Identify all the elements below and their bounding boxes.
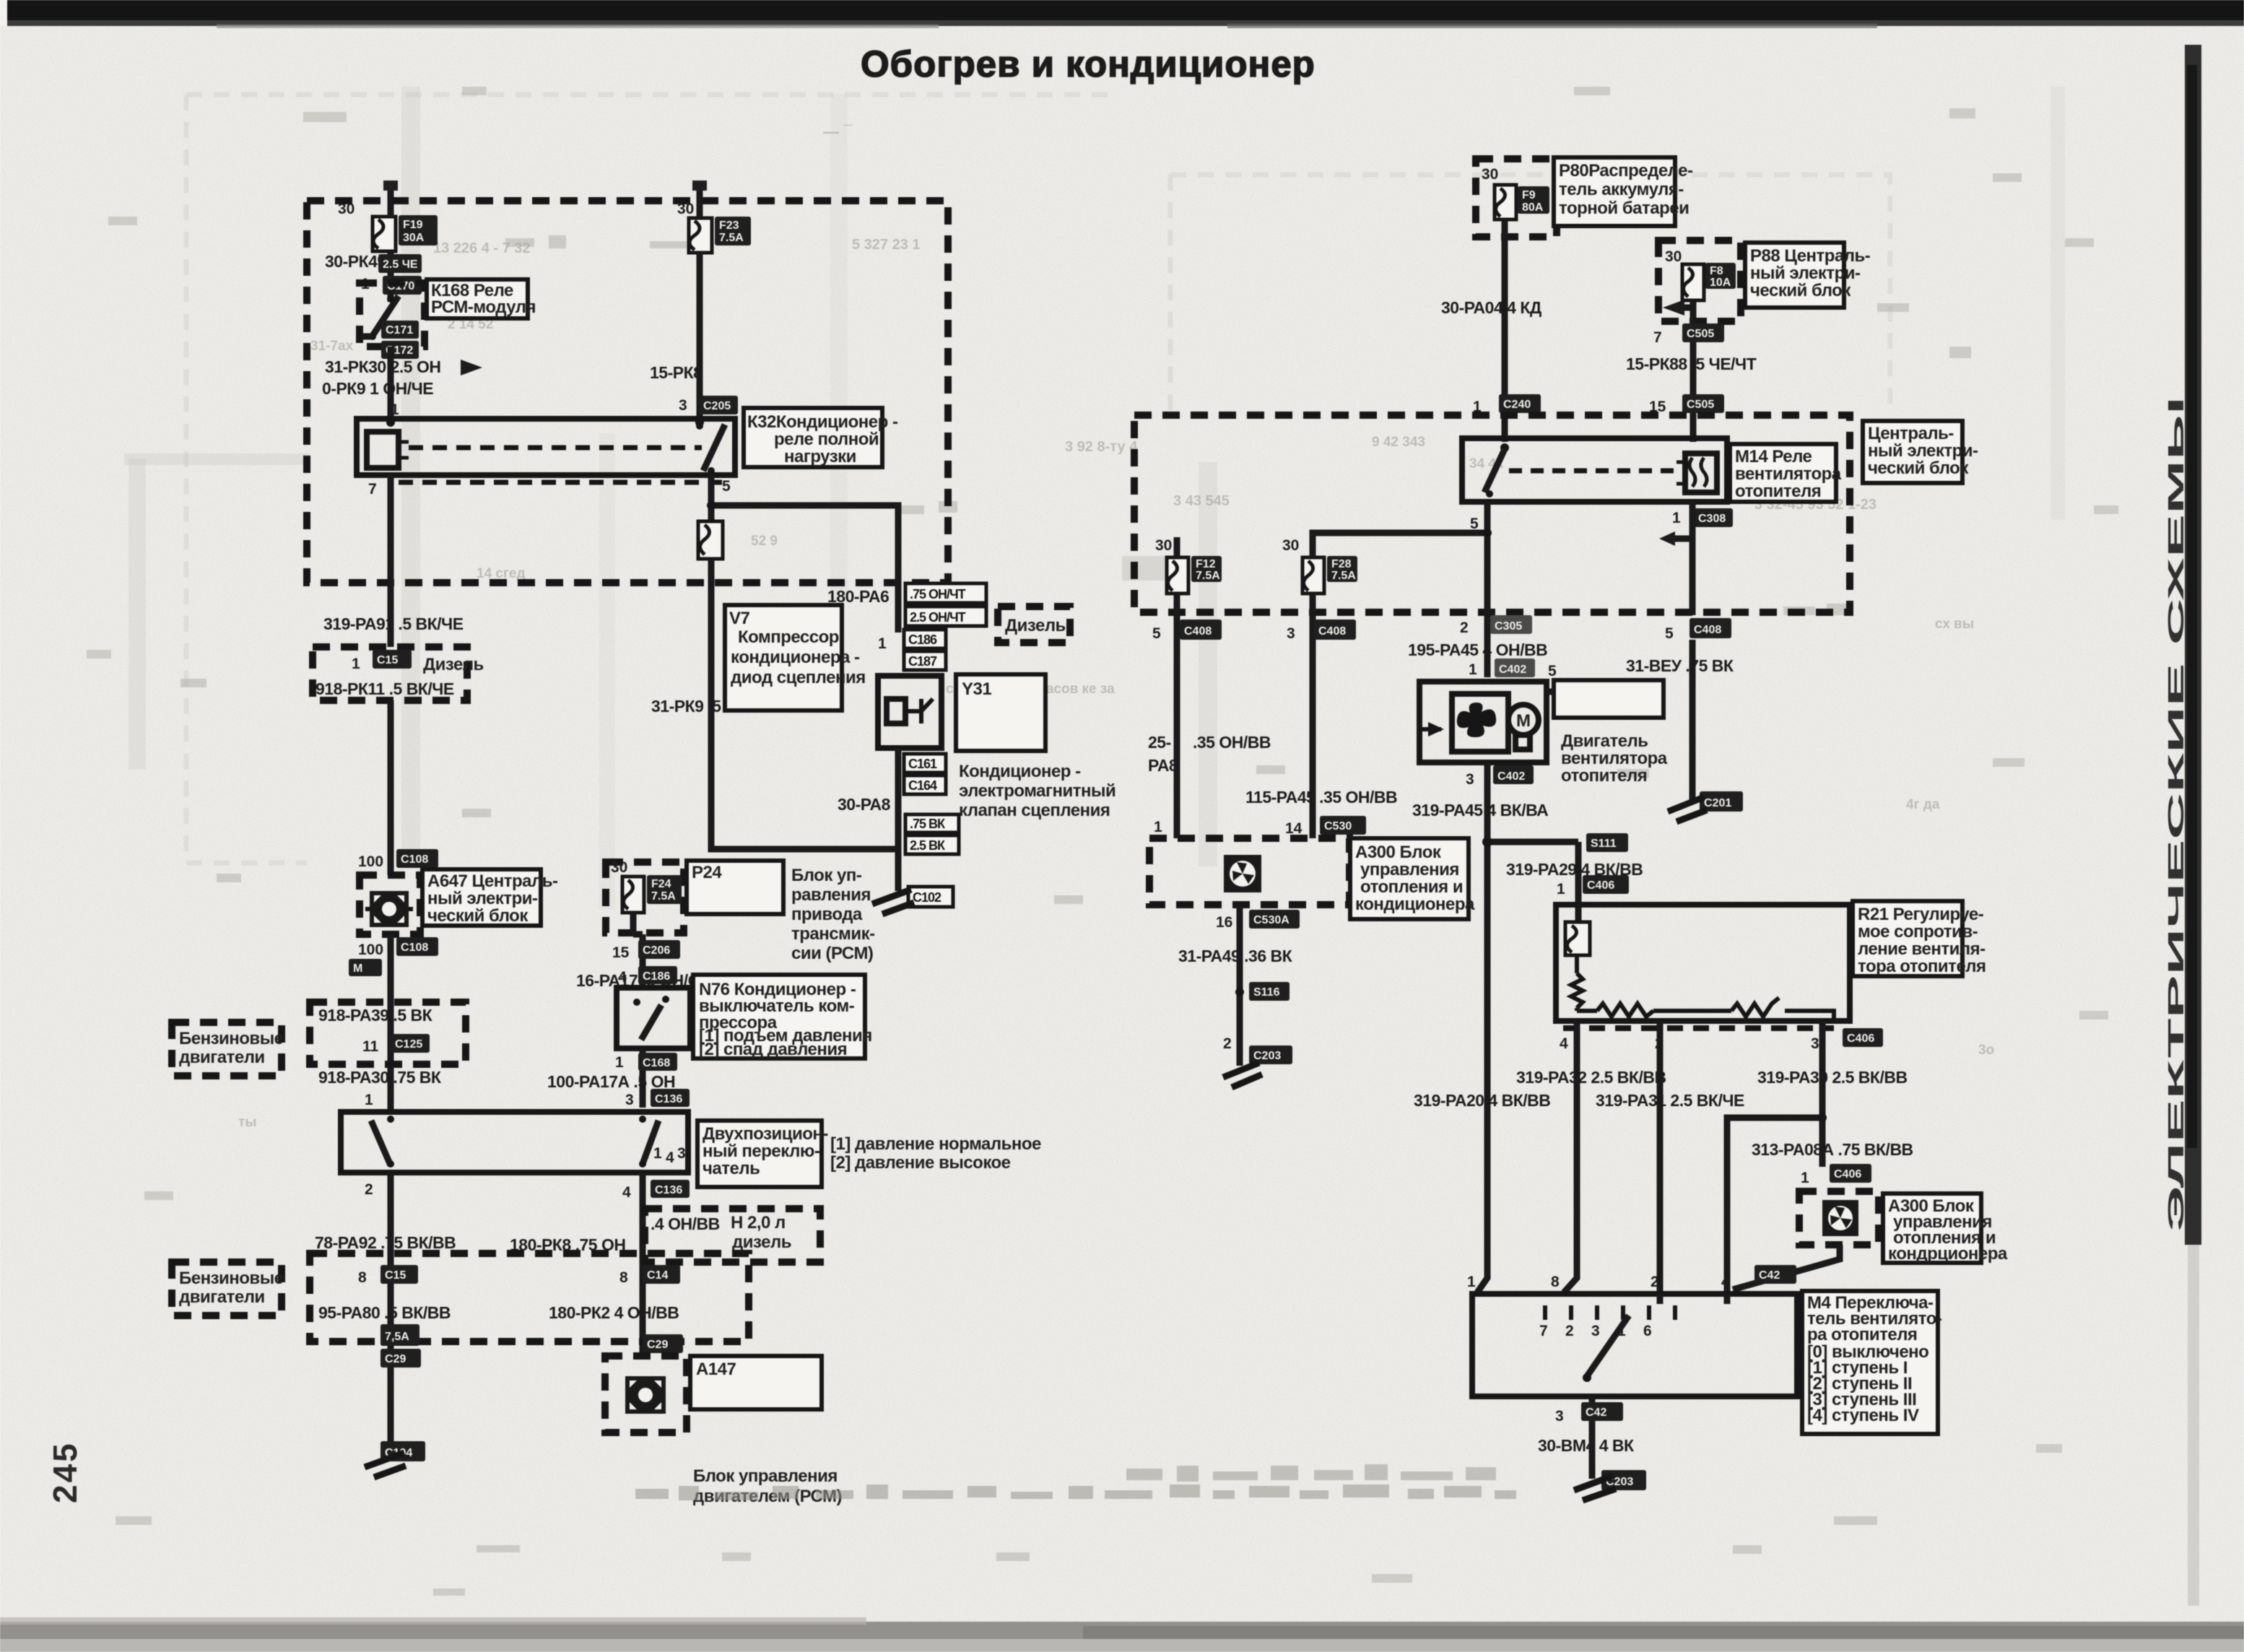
svg-text:4: 4 <box>1721 1274 1730 1290</box>
svg-text:319-РА45 4 ВК/ВА: 319-РА45 4 ВК/ВА <box>1412 801 1548 820</box>
svg-text:двигатели: двигатели <box>179 1048 265 1067</box>
svg-text:С29: С29 <box>385 1353 406 1365</box>
svg-text:Дизель: Дизель <box>423 655 484 674</box>
svg-text:7.5A: 7.5A <box>1331 570 1356 582</box>
svg-text:С408: С408 <box>1184 625 1212 638</box>
svg-text:ный электри-: ный электри- <box>1750 264 1861 283</box>
svg-text:кондиционера: кондиционера <box>1355 895 1475 914</box>
svg-text:8: 8 <box>619 1269 628 1286</box>
svg-text:30: 30 <box>611 859 627 876</box>
svg-text:РА8: РА8 <box>1148 756 1178 775</box>
svg-text:31-РА49 .36 ВК: 31-РА49 .36 ВК <box>1178 947 1293 965</box>
svg-text:А647 Централь-: А647 Централь- <box>427 871 558 891</box>
svg-text:отопителя: отопителя <box>1561 766 1647 786</box>
svg-text:вентилятора: вентилятора <box>1735 464 1842 484</box>
svg-text:100: 100 <box>358 853 383 870</box>
svg-text:3о: 3о <box>1978 1043 1994 1058</box>
svg-text:10A: 10A <box>1710 277 1731 289</box>
svg-text:1: 1 <box>878 635 887 652</box>
svg-text:25-: 25- <box>1148 733 1171 752</box>
svg-text:95-РА80 .5 ВК/ВВ: 95-РА80 .5 ВК/ВВ <box>318 1303 451 1322</box>
svg-text:С530: С530 <box>1324 820 1352 832</box>
svg-text:F8: F8 <box>1710 265 1723 277</box>
svg-text:2: 2 <box>1565 1323 1574 1339</box>
svg-text:Двигатель: Двигатель <box>1561 731 1648 751</box>
svg-text:5: 5 <box>722 478 731 495</box>
svg-text:отопления и: отопления и <box>1360 877 1463 897</box>
svg-text:78-РА92 .75 ВК/ВВ: 78-РА92 .75 ВК/ВВ <box>315 1233 456 1252</box>
svg-text:2.5 ВК: 2.5 ВК <box>910 838 946 853</box>
svg-text:30: 30 <box>338 201 355 217</box>
svg-text:S111: S111 <box>1591 838 1617 850</box>
svg-text:1: 1 <box>1672 510 1681 526</box>
svg-text:918-РА30 .75 ВК: 918-РА30 .75 ВК <box>318 1068 442 1087</box>
svg-text:3: 3 <box>625 1092 634 1108</box>
svg-text:реле полной: реле полной <box>774 430 879 449</box>
svg-text:дизель: дизель <box>732 1233 791 1252</box>
svg-text:1: 1 <box>1469 661 1477 678</box>
svg-text:С406: С406 <box>1834 1168 1861 1181</box>
svg-text:30-РА04 4 КД: 30-РА04 4 КД <box>1441 298 1541 317</box>
svg-text:F12: F12 <box>1196 558 1216 570</box>
svg-text:16: 16 <box>1216 914 1232 931</box>
svg-text:.4 ОН/ВВ: .4 ОН/ВВ <box>651 1214 720 1233</box>
svg-text:3: 3 <box>679 397 687 414</box>
svg-text:С186: С186 <box>908 632 937 647</box>
svg-text:V7: V7 <box>729 609 750 628</box>
svg-text:7: 7 <box>1653 329 1662 346</box>
svg-text:F28: F28 <box>1331 558 1352 570</box>
svg-text:ление вентиля-: ление вентиля- <box>1858 939 1986 959</box>
svg-text:2: 2 <box>1651 1274 1659 1290</box>
svg-text:ный электри-: ный электри- <box>427 889 538 908</box>
svg-text:4: 4 <box>618 969 627 986</box>
svg-text:сх вы: сх вы <box>1935 617 1974 632</box>
svg-text:ра отопителя: ра отопителя <box>1807 1325 1917 1344</box>
svg-text:С530А: С530А <box>1253 914 1290 926</box>
svg-text:С406: С406 <box>1847 1032 1874 1045</box>
svg-text:R21 Регулируе-: R21 Регулируе- <box>1858 905 1984 924</box>
svg-text:319-РА30 2.5 ВК/ВВ: 319-РА30 2.5 ВК/ВВ <box>1757 1068 1908 1087</box>
svg-text:Р24: Р24 <box>692 863 722 882</box>
svg-text:С108: С108 <box>401 942 428 954</box>
svg-text:1: 1 <box>1154 819 1162 835</box>
svg-text:14 сгед: 14 сгед <box>477 566 526 581</box>
svg-text:3: 3 <box>1555 1408 1564 1425</box>
svg-text:Обогрев и кондиционер: Обогрев и кондиционер <box>861 43 1315 84</box>
svg-text:диод сцепления: диод сцепления <box>731 668 866 687</box>
svg-text:С164: С164 <box>908 778 937 793</box>
svg-text:привода: привода <box>791 905 863 924</box>
svg-text:7,5А: 7,5А <box>385 1331 409 1343</box>
svg-text:319-РА32 2.5 ВК/ВВ: 319-РА32 2.5 ВК/ВВ <box>1516 1068 1666 1087</box>
svg-text:ный переклю-: ный переклю- <box>703 1142 820 1161</box>
svg-text:ЭЛЕКТРИЧЕСКИЕ СХЕМЫ: ЭЛЕКТРИЧЕСКИЕ СХЕМЫ <box>2163 396 2188 1232</box>
svg-text:7.5A: 7.5A <box>1196 570 1220 582</box>
svg-text:.75 ОН/ЧТ: .75 ОН/ЧТ <box>910 587 966 601</box>
svg-text:9 42 343: 9 42 343 <box>1372 435 1425 450</box>
svg-text:30: 30 <box>677 201 694 217</box>
svg-text:Р88 Централь-: Р88 Централь- <box>1750 246 1871 266</box>
svg-text:— ¯: — ¯ <box>823 123 853 141</box>
svg-text:100-РА17А .5 ОН: 100-РА17А .5 ОН <box>547 1072 675 1091</box>
svg-text:кондрционера: кондрционера <box>1888 1244 2008 1264</box>
svg-text:52 9: 52 9 <box>751 534 778 549</box>
svg-text:4г да: 4г да <box>1906 797 1940 812</box>
svg-text:F9: F9 <box>1522 189 1536 201</box>
svg-text:ческий блок: ческий блок <box>1750 281 1851 300</box>
svg-text:Дизель: Дизель <box>1005 616 1066 635</box>
svg-text:5: 5 <box>1548 663 1557 679</box>
svg-text:Y31: Y31 <box>962 679 991 699</box>
svg-text:1: 1 <box>1557 881 1565 897</box>
svg-text:15-РК88 .5 ЧЕ/ЧТ: 15-РК88 .5 ЧЕ/ЧТ <box>1626 355 1757 373</box>
svg-text:6: 6 <box>1643 1323 1652 1339</box>
svg-text:3: 3 <box>677 1145 686 1162</box>
svg-text:С171: С171 <box>386 324 413 336</box>
svg-text:К32Кондиционер -: К32Кондиционер - <box>747 412 898 432</box>
svg-text:1: 1 <box>615 1054 624 1071</box>
svg-text:М: М <box>353 962 362 975</box>
svg-text:С186: С186 <box>643 970 670 983</box>
svg-text:3: 3 <box>1466 771 1474 788</box>
svg-text:30: 30 <box>1482 166 1498 183</box>
svg-text:15-РК8: 15-РК8 <box>650 363 703 382</box>
svg-text:245: 245 <box>46 1441 84 1503</box>
svg-text:7: 7 <box>368 481 377 497</box>
svg-text:Двухпозицион-: Двухпозицион- <box>703 1124 828 1144</box>
svg-text:8: 8 <box>1551 1274 1560 1290</box>
svg-text:управления: управления <box>1360 860 1459 879</box>
svg-text:М14 Реле: М14 Реле <box>1735 447 1812 466</box>
svg-text:30-РА8: 30-РА8 <box>838 795 891 814</box>
svg-text:С42: С42 <box>1586 1407 1606 1419</box>
svg-text:3: 3 <box>1591 1323 1600 1339</box>
svg-text:Централь-: Централь- <box>1868 424 1954 443</box>
svg-text:100: 100 <box>358 942 383 958</box>
svg-text:клапан сцепления: клапан сцепления <box>959 801 1110 820</box>
svg-text:С136: С136 <box>655 1093 682 1105</box>
svg-text:А300 Блок: А300 Блок <box>1355 843 1442 862</box>
svg-text:С42: С42 <box>1759 1269 1780 1282</box>
svg-text:РСМ-модуля: РСМ-модуля <box>431 297 536 317</box>
svg-text:80A: 80A <box>1522 201 1544 214</box>
svg-text:1: 1 <box>352 656 360 672</box>
svg-text:двигатели: двигатели <box>179 1287 265 1307</box>
svg-text:С29: С29 <box>647 1339 668 1351</box>
svg-text:4: 4 <box>666 1149 674 1166</box>
svg-text:5: 5 <box>1665 625 1674 642</box>
svg-text:3: 3 <box>1287 625 1295 642</box>
svg-text:5: 5 <box>1152 625 1161 642</box>
svg-text:торной батареи: торной батареи <box>1559 199 1689 218</box>
svg-text:равления: равления <box>791 885 871 905</box>
svg-text:F23: F23 <box>719 219 739 232</box>
svg-text:тель аккумуля-: тель аккумуля- <box>1559 180 1684 199</box>
svg-text:4: 4 <box>622 1184 631 1201</box>
svg-text:Кондиционер -: Кондиционер - <box>959 762 1081 781</box>
svg-text:нагрузки: нагрузки <box>784 447 856 466</box>
svg-text:195-РА45 4 ОН/ВВ: 195-РА45 4 ОН/ВВ <box>1408 640 1547 659</box>
svg-text:15: 15 <box>612 944 630 961</box>
svg-text:отопителя: отопителя <box>1735 482 1821 501</box>
svg-text:С201: С201 <box>1704 797 1731 809</box>
svg-text:115-РА45 .35 ОН/ВВ: 115-РА45 .35 ОН/ВВ <box>1245 788 1397 807</box>
svg-text:918-РК11 .5 ВК/ЧЕ: 918-РК11 .5 ВК/ЧЕ <box>316 679 454 698</box>
svg-text:180-РК2 4 ОН/ВВ: 180-РК2 4 ОН/ВВ <box>549 1303 679 1322</box>
svg-text:313-РА08А .75 ВК/ВВ: 313-РА08А .75 ВК/ВВ <box>1752 1140 1913 1159</box>
svg-text:С102: С102 <box>913 890 941 905</box>
svg-text:2.5 ОН/ЧТ: 2.5 ОН/ЧТ <box>910 610 966 625</box>
svg-text:Р80Распределе-: Р80Распределе- <box>1559 161 1693 181</box>
svg-text:30A: 30A <box>403 232 425 244</box>
svg-text:11: 11 <box>362 1038 379 1055</box>
svg-text:С15: С15 <box>377 654 398 666</box>
svg-text:31-ВЕУ .75 ВК: 31-ВЕУ .75 ВК <box>1626 656 1734 675</box>
svg-text:ческий блок: ческий блок <box>1868 458 1969 478</box>
svg-text:30-ВМ4 4 ВК: 30-ВМ4 4 ВК <box>1538 1436 1635 1455</box>
svg-text:3 92 8-ту 4: 3 92 8-ту 4 <box>1065 439 1138 455</box>
svg-text:А147: А147 <box>696 1360 736 1379</box>
svg-text:2.5 ЧЕ: 2.5 ЧЕ <box>383 258 418 271</box>
svg-text:М: М <box>1516 711 1531 731</box>
svg-text:кондиционера -: кондиционера - <box>731 648 860 667</box>
svg-text:1: 1 <box>391 401 399 418</box>
svg-text:[4] ступень IV: [4] ступень IV <box>1807 1406 1919 1425</box>
svg-text:S116: S116 <box>1253 986 1280 999</box>
svg-text:чатель: чатель <box>703 1159 760 1178</box>
svg-text:Бензиновые: Бензиновые <box>179 1029 284 1048</box>
svg-text:14: 14 <box>1285 820 1303 837</box>
svg-text:С14: С14 <box>647 1269 668 1282</box>
svg-text:С505: С505 <box>1687 328 1714 340</box>
svg-text:сии (РСМ): сии (РСМ) <box>791 944 873 963</box>
svg-text:2: 2 <box>365 1181 373 1198</box>
svg-text:1: 1 <box>1801 1170 1809 1186</box>
svg-text:319-РА20 4 ВК/ВВ: 319-РА20 4 ВК/ВВ <box>1414 1091 1550 1110</box>
svg-text:F19: F19 <box>403 219 423 231</box>
svg-text:.35 ОН/ВВ: .35 ОН/ВВ <box>1193 733 1271 752</box>
svg-text:вентилятора: вентилятора <box>1561 749 1668 768</box>
svg-text:1: 1 <box>365 1092 373 1108</box>
svg-text:С168: С168 <box>643 1057 670 1069</box>
svg-text:30: 30 <box>1282 537 1299 554</box>
svg-text:ческий блок: ческий блок <box>427 906 529 926</box>
svg-text:С406: С406 <box>1587 879 1614 892</box>
svg-text:мое сопротив-: мое сопротив- <box>1858 922 1978 942</box>
svg-text:1: 1 <box>1467 1274 1476 1290</box>
svg-text:8: 8 <box>358 1269 367 1286</box>
svg-text:Н 2,0 л: Н 2,0 л <box>731 1213 786 1233</box>
svg-text:31-7ах: 31-7ах <box>310 339 354 354</box>
svg-text:С408: С408 <box>1318 625 1346 638</box>
svg-text:ты: ты <box>238 1115 257 1130</box>
svg-text:трансмик-: трансмик- <box>791 924 875 944</box>
svg-text:F24: F24 <box>651 878 671 890</box>
svg-text:30: 30 <box>1155 537 1172 554</box>
svg-text:3: 3 <box>1811 1035 1819 1052</box>
svg-text:Бензиновые: Бензиновые <box>179 1269 284 1288</box>
svg-text:Блок управления: Блок управления <box>693 1466 838 1486</box>
svg-text:2: 2 <box>1223 1035 1232 1052</box>
svg-text:С108: С108 <box>401 853 428 866</box>
svg-text:4: 4 <box>1560 1035 1568 1052</box>
svg-text:319-РА91 .5 ВК/ЧЕ: 319-РА91 .5 ВК/ЧЕ <box>323 614 464 633</box>
svg-text:3 43 545: 3 43 545 <box>1173 493 1230 509</box>
svg-text:С240: С240 <box>1503 399 1531 411</box>
svg-text:С505: С505 <box>1687 399 1714 411</box>
svg-text:С205: С205 <box>703 400 731 412</box>
svg-text:С402: С402 <box>1499 664 1526 676</box>
svg-text:31-РК30 2.5 ОН: 31-РК30 2.5 ОН <box>325 357 440 376</box>
svg-text:1: 1 <box>653 1145 662 1162</box>
svg-text:[1] давление нормальное: [1] давление нормальное <box>830 1134 1041 1154</box>
svg-text:С408: С408 <box>1694 624 1721 636</box>
svg-text:7: 7 <box>1539 1323 1548 1339</box>
svg-text:7.5A: 7.5A <box>719 232 744 244</box>
svg-text:[2] спад давления: [2] спад давления <box>699 1040 847 1059</box>
svg-text:918-РА39 .5 ВК: 918-РА39 .5 ВК <box>318 1006 433 1025</box>
svg-text:электромагнитный: электромагнитный <box>959 781 1116 801</box>
svg-text:Компрессор: Компрессор <box>738 627 839 647</box>
svg-text:С161: С161 <box>908 757 937 771</box>
svg-text:тора отопителя: тора отопителя <box>1858 957 1986 976</box>
svg-text:30-РК49: 30-РК49 <box>325 252 386 271</box>
svg-text:С305: С305 <box>1495 620 1522 632</box>
svg-text:С206: С206 <box>643 944 670 957</box>
svg-text:ный электри-: ный электри- <box>1868 441 1978 461</box>
svg-text:С308: С308 <box>1698 513 1726 525</box>
svg-text:С15: С15 <box>385 1269 406 1282</box>
svg-text:5 327 23 1: 5 327 23 1 <box>852 237 921 253</box>
svg-text:С402: С402 <box>1497 770 1525 783</box>
svg-text:.75 ВК: .75 ВК <box>910 817 946 831</box>
svg-text:319-РА31 2.5 ВК/ЧЕ: 319-РА31 2.5 ВК/ЧЕ <box>1596 1091 1744 1110</box>
svg-text:С136: С136 <box>655 1184 682 1196</box>
svg-text:0-РК9 1 ОН/ЧЕ: 0-РК9 1 ОН/ЧЕ <box>322 379 433 398</box>
svg-text:7.5A: 7.5A <box>651 890 676 903</box>
svg-text:2: 2 <box>1460 619 1469 636</box>
svg-text:30: 30 <box>1665 248 1682 265</box>
svg-text:[2] давление высокое: [2] давление высокое <box>830 1153 1011 1173</box>
svg-text:С125: С125 <box>395 1038 422 1051</box>
svg-text:Блок уп-: Блок уп- <box>791 866 862 885</box>
svg-text:С187: С187 <box>908 654 937 669</box>
